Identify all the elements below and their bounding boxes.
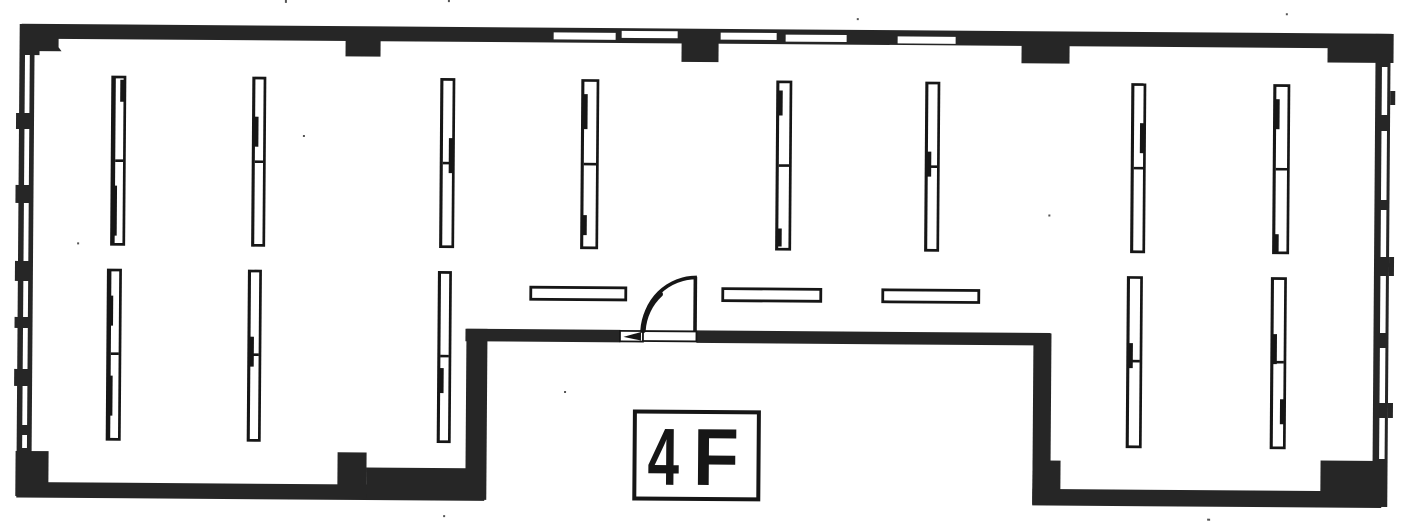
svg-text:4: 4 <box>647 412 679 503</box>
svg-text:F: F <box>693 411 739 503</box>
